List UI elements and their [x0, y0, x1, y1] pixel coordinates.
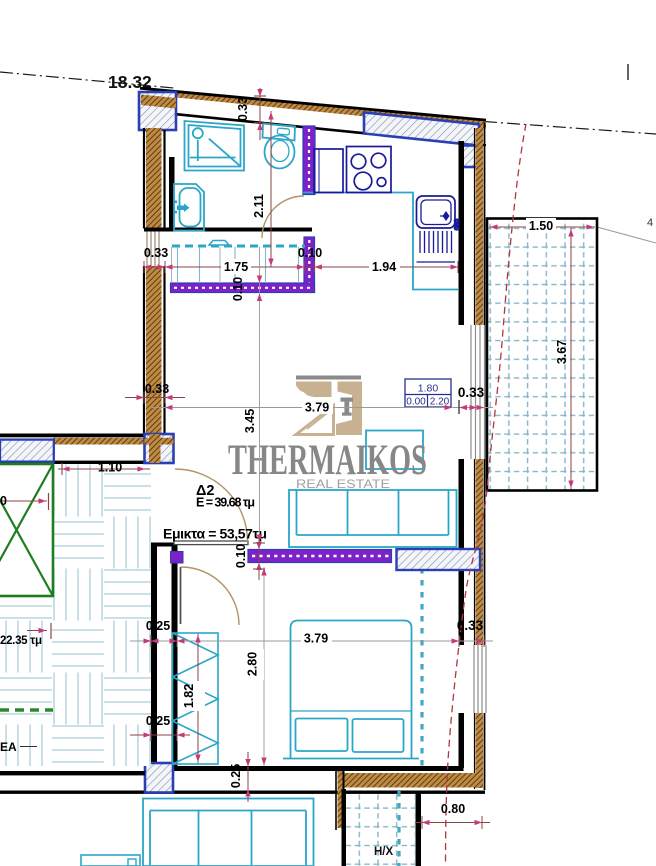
svg-text:060: 060	[454, 219, 461, 230]
svg-text:0.33: 0.33	[145, 382, 169, 396]
svg-text:0.00: 0.00	[406, 397, 426, 408]
svg-text:0: 0	[0, 494, 7, 508]
svg-text:0.33: 0.33	[457, 618, 484, 633]
svg-text:1.50: 1.50	[529, 219, 553, 233]
svg-text:1.82: 1.82	[182, 684, 196, 708]
svg-text:2.11: 2.11	[252, 194, 266, 218]
svg-text:22.35 τμ: 22.35 τμ	[0, 635, 42, 647]
svg-text:0.10: 0.10	[231, 277, 245, 301]
svg-text:E = 39.68 τμ: E = 39.68 τμ	[196, 496, 255, 510]
svg-text:0.10: 0.10	[234, 544, 248, 568]
svg-text:Εμικτα = 53,57τμ: Εμικτα = 53,57τμ	[163, 526, 267, 542]
svg-text:1.10: 1.10	[98, 461, 122, 475]
svg-text:0.33: 0.33	[236, 97, 250, 121]
svg-text:0.80: 0.80	[441, 802, 465, 816]
svg-text:2.80: 2.80	[246, 652, 260, 676]
svg-text:0.33: 0.33	[458, 385, 485, 400]
svg-text:3.45: 3.45	[243, 409, 257, 433]
svg-text:0.25: 0.25	[146, 714, 170, 728]
svg-text:0.25: 0.25	[229, 764, 243, 788]
svg-text:1.75: 1.75	[224, 260, 248, 274]
svg-text:1.94: 1.94	[372, 260, 396, 274]
svg-text:0.33: 0.33	[144, 246, 168, 260]
svg-text:3.79: 3.79	[304, 632, 328, 646]
svg-text:3.67: 3.67	[555, 340, 569, 364]
svg-text:EA: EA	[0, 740, 17, 754]
svg-text:1.80: 1.80	[418, 383, 439, 395]
svg-text:3.79: 3.79	[305, 401, 329, 415]
svg-text:0.10: 0.10	[298, 246, 322, 260]
svg-text:4: 4	[647, 217, 653, 229]
svg-text:H/X: H/X	[374, 846, 394, 858]
svg-text:0.25: 0.25	[146, 619, 170, 633]
svg-text:REAL ESTATE: REAL ESTATE	[296, 477, 390, 491]
